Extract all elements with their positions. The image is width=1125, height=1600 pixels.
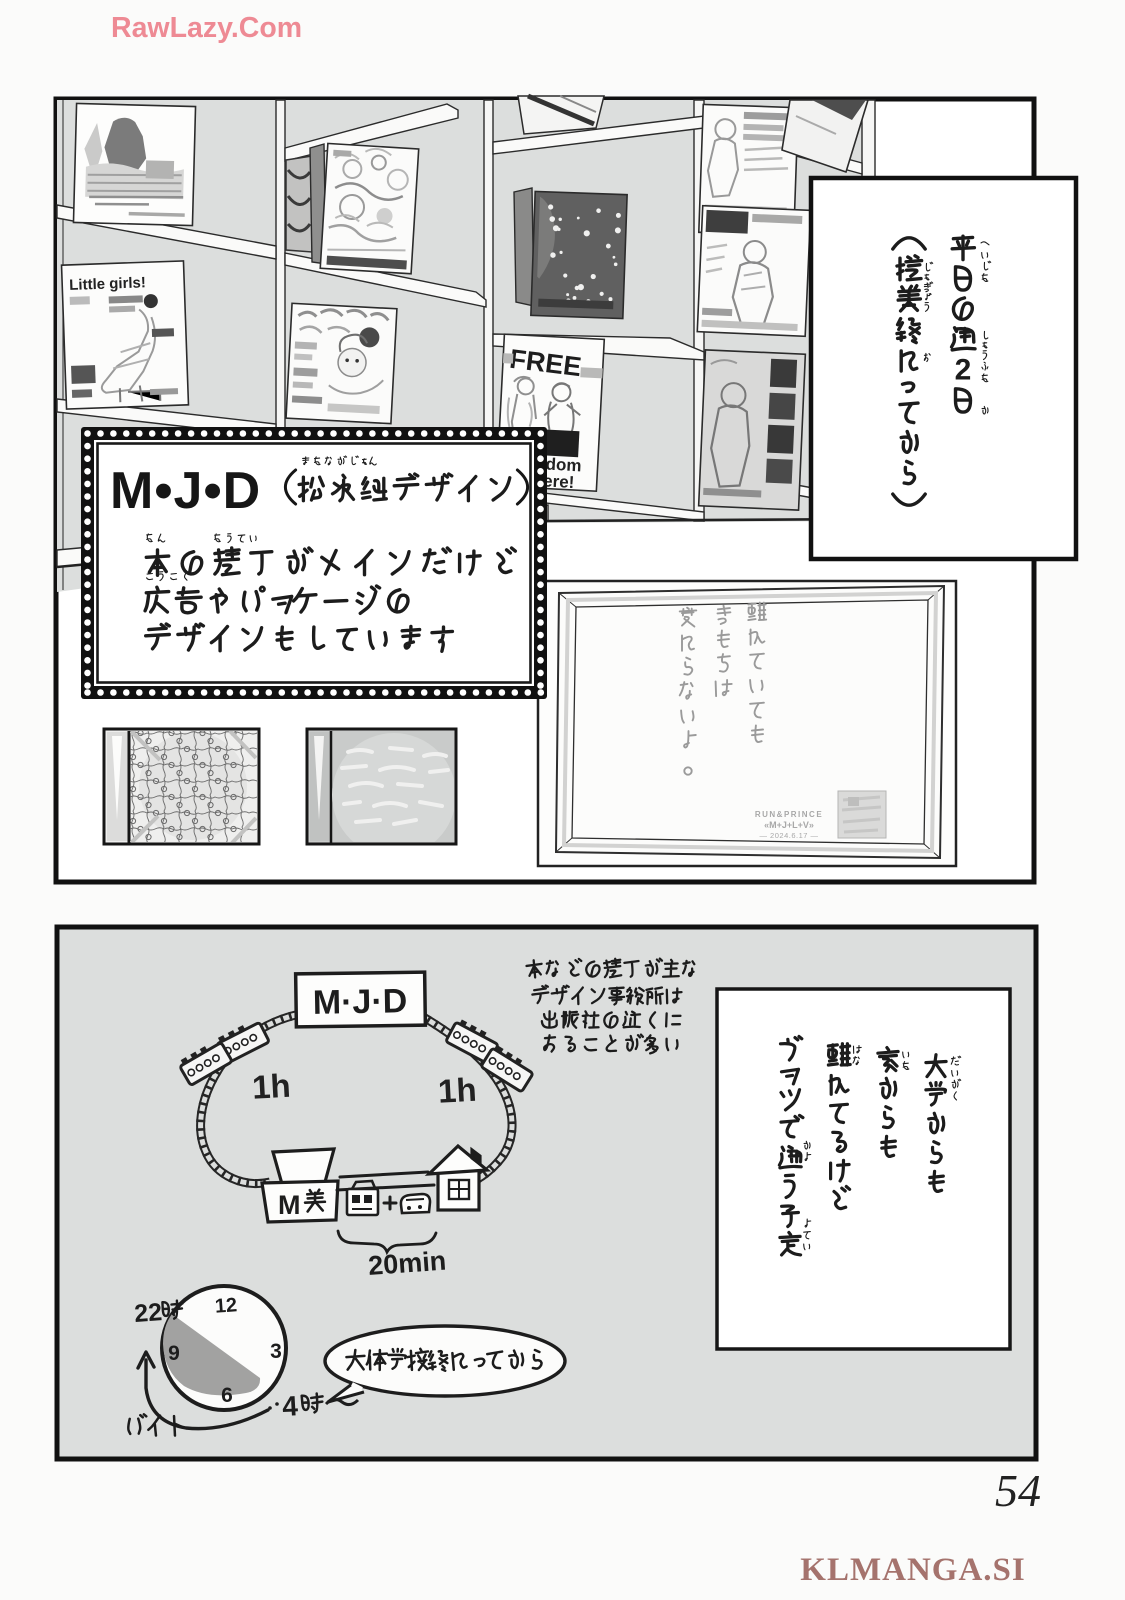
svg-text:RUN&PRINCE: RUN&PRINCE (755, 810, 823, 819)
svg-text:12: 12 (214, 1294, 238, 1317)
svg-text:6: 6 (221, 1384, 233, 1407)
svg-text:22: 22 (133, 1298, 163, 1328)
svg-text:1h: 1h (437, 1071, 477, 1110)
svg-text:3: 3 (270, 1340, 282, 1363)
svg-text:4: 4 (281, 1390, 299, 1422)
svg-text:20min: 20min (367, 1246, 447, 1281)
svg-text:Little girls!: Little girls! (69, 274, 146, 294)
svg-text:54: 54 (995, 1465, 1041, 1516)
svg-text:1h: 1h (251, 1067, 291, 1106)
svg-text:«M+J+L+V»: «M+J+L+V» (764, 820, 814, 830)
svg-text:2: 2 (955, 354, 972, 387)
svg-text:9: 9 (168, 1342, 180, 1365)
svg-text:KLMANGA.SI: KLMANGA.SI (800, 1552, 1025, 1588)
svg-text:— 2024.6.17 —: — 2024.6.17 — (759, 831, 818, 840)
svg-text:RawLazy.Com: RawLazy.Com (111, 12, 302, 44)
svg-text:M·J·D: M·J·D (313, 982, 408, 1022)
svg-text:M: M (278, 1190, 301, 1220)
svg-text:M•J•D: M•J•D (110, 462, 261, 520)
